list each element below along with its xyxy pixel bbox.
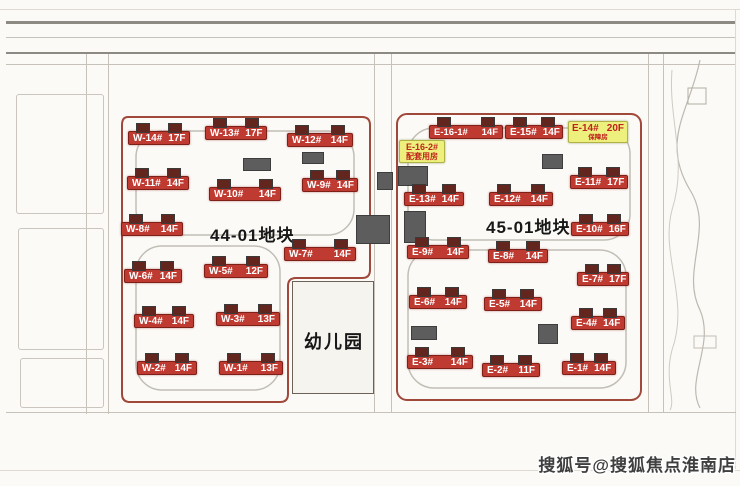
building-label: W-5#12F: [204, 264, 268, 278]
building-floors: 14F: [167, 178, 184, 189]
building-label: E-12#14F: [489, 192, 553, 206]
building-name: W-12#: [292, 135, 321, 146]
building-name: E-8#: [493, 251, 514, 262]
building-floors: 20F: [607, 123, 624, 134]
building-name: E-1#: [567, 363, 588, 374]
building-floors: 14F: [526, 251, 543, 262]
building-name: E-3#: [412, 357, 433, 368]
building-label: W-6#14F: [124, 269, 182, 283]
building-name: E-4#: [576, 318, 597, 329]
structure-block: [542, 154, 563, 169]
building-floors: 12F: [246, 266, 263, 277]
building-floors: 11F: [518, 365, 535, 376]
building-floors: 13F: [261, 363, 278, 374]
building-name: E-5#: [489, 299, 510, 310]
structure-block: [411, 326, 437, 340]
building-label: W-12#14F: [287, 133, 353, 147]
building-name: W-14#: [133, 133, 162, 144]
structure-block: [356, 215, 390, 244]
building-label: E-10#16F: [571, 222, 629, 236]
building-name: W-4#: [139, 316, 163, 327]
building-name: E-2#: [487, 365, 508, 376]
building-name: W-3#: [221, 314, 245, 325]
building-floors: 14F: [331, 135, 348, 146]
site-plan: 44-01地块 45-01地块 幼儿园 W-14#17F W-13#17F W-…: [0, 0, 740, 486]
building-label: W-3#13F: [216, 312, 280, 326]
building-label-special: E-16-2# 配套用房: [399, 140, 445, 163]
building-floors: 14F: [445, 297, 462, 308]
building-label: E-15#14F: [505, 125, 563, 139]
building-floors: 17F: [607, 177, 624, 188]
building-name: W-9#: [307, 180, 331, 191]
building-floors: 14F: [442, 194, 459, 205]
building-name: W-13#: [210, 128, 239, 139]
building-name: W-5#: [209, 266, 233, 277]
building-label: E-13#14F: [404, 192, 464, 206]
building-label: E-8#14F: [488, 249, 548, 263]
building-floors: 17F: [168, 133, 185, 144]
building-label: W-7#14F: [284, 247, 356, 261]
building-note: 保障房: [572, 134, 624, 141]
building-name: W-6#: [129, 271, 153, 282]
building-note: 配套用房: [403, 152, 441, 161]
building-floors: 14F: [175, 363, 192, 374]
building-label: W-14#17F: [128, 131, 190, 145]
building-label: E-4#14F: [571, 316, 625, 330]
building-floors: 14F: [447, 247, 464, 258]
building-name: E-10#: [576, 224, 603, 235]
building-name: E-16-2#: [406, 142, 438, 152]
building-name: E-13#: [409, 194, 436, 205]
building-label: E-11#17F: [570, 175, 628, 189]
building-label: W-1#13F: [219, 361, 283, 375]
building-floors: 14F: [161, 224, 178, 235]
building-label: W-10#14F: [209, 187, 281, 201]
building-name: E-12#: [494, 194, 521, 205]
plot-title-44-01: 44-01地块: [210, 221, 294, 246]
building-name: E-11#: [575, 177, 601, 188]
building-name: W-1#: [224, 363, 248, 374]
building-name: E-7#: [582, 274, 603, 285]
building-floors: 14F: [594, 363, 611, 374]
building-name: E-14#: [572, 123, 599, 134]
building-label: W-9#14F: [302, 178, 358, 192]
structure-block: [377, 172, 393, 190]
building-floors: 14F: [160, 271, 177, 282]
structure-block: [302, 152, 324, 164]
building-name: W-10#: [214, 189, 243, 200]
building-floors: 17F: [609, 274, 626, 285]
building-label: E-3#14F: [407, 355, 473, 369]
structure-block: [538, 324, 558, 344]
building-name: W-11#: [132, 178, 161, 189]
building-label: E-1#14F: [562, 361, 616, 375]
building-floors: 14F: [531, 194, 548, 205]
kindergarten-label: 幼儿园: [304, 328, 364, 354]
building-floors: 16F: [609, 224, 626, 235]
building-label: E-7#17F: [577, 272, 629, 286]
building-label-special: E-14#20F 保障房: [568, 121, 628, 143]
building-name: E-15#: [510, 127, 537, 138]
building-label: W-4#14F: [134, 314, 194, 328]
building-name: E-16-1#: [434, 127, 468, 138]
building-label: W-11#14F: [127, 176, 189, 190]
building-floors: 13F: [258, 314, 275, 325]
building-label: W-13#17F: [205, 126, 267, 140]
building-name: E-9#: [412, 247, 433, 258]
plot-title-45-01: 45-01地块: [486, 213, 570, 238]
building-name: E-6#: [414, 297, 435, 308]
building-floors: 14F: [337, 180, 354, 191]
building-label: E-6#14F: [409, 295, 467, 309]
building-name: W-7#: [289, 249, 313, 260]
building-floors: 14F: [603, 318, 620, 329]
building-floors: 14F: [451, 357, 468, 368]
building-label: E-16-1#14F: [429, 125, 503, 139]
building-floors: 14F: [259, 189, 276, 200]
building-floors: 14F: [334, 249, 351, 260]
structure-block: [243, 158, 271, 171]
building-label: E-9#14F: [407, 245, 469, 259]
structure-block: [398, 166, 428, 186]
building-floors: 14F: [520, 299, 537, 310]
building-floors: 14F: [543, 127, 560, 138]
building-floors: 17F: [245, 128, 262, 139]
building-floors: 14F: [172, 316, 189, 327]
building-floors: 14F: [482, 127, 498, 138]
watermark: 搜狐号@搜狐焦点淮南店: [538, 451, 736, 476]
building-name: W-2#: [142, 363, 166, 374]
building-name: W-8#: [126, 224, 150, 235]
building-label: E-5#14F: [484, 297, 542, 311]
building-label: W-8#14F: [121, 222, 183, 236]
building-label: W-2#14F: [137, 361, 197, 375]
building-label: E-2#11F: [482, 363, 540, 377]
